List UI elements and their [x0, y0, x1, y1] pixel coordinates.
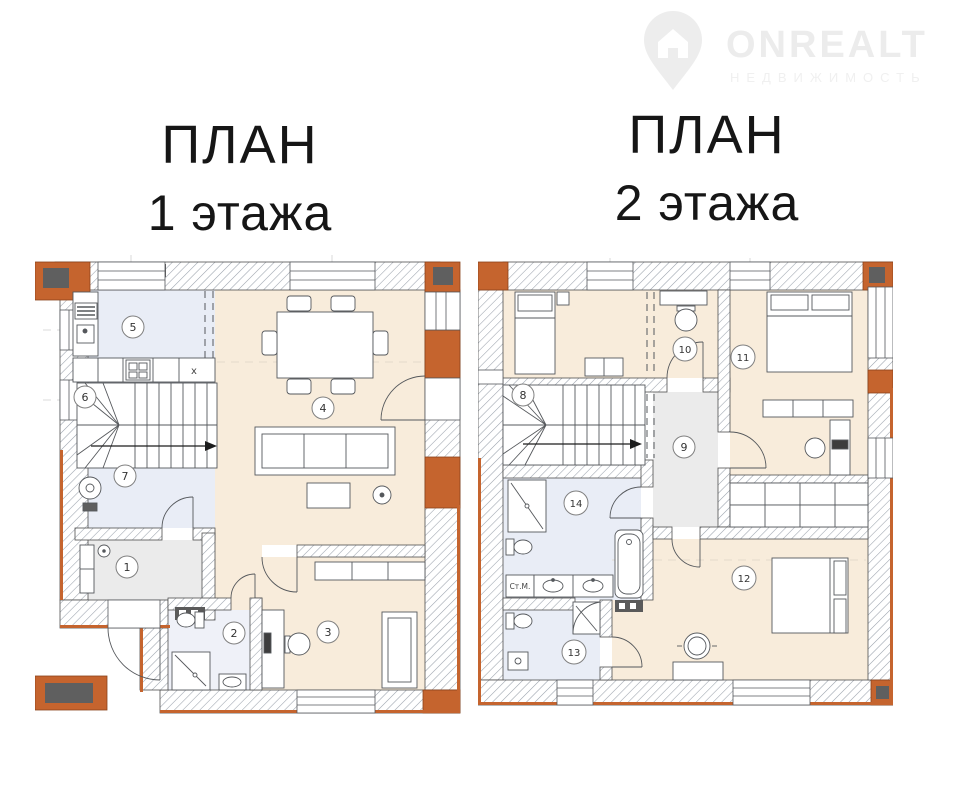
staircase-floor1: [77, 383, 217, 468]
floor1-title-line2: 1 этажа: [125, 188, 355, 238]
kitchen-unit-label: x: [191, 366, 197, 377]
room-number-13: 13: [568, 648, 581, 659]
room-number-3: 3: [325, 626, 332, 639]
floor1-title-line1: ПЛАН: [125, 118, 355, 172]
room-number-1: 1: [124, 561, 131, 574]
room-number-2: 2: [231, 627, 238, 640]
washing-machine-label: Ст.М.: [510, 582, 531, 591]
room-number-9: 9: [681, 441, 688, 454]
room-number-5: 5: [130, 321, 137, 334]
floorplan-image: ONREALT НЕДВИЖИМОСТЬ ПЛАН 1 этажа ПЛАН 2…: [0, 0, 955, 800]
watermark-brand: ONREALT: [726, 24, 928, 67]
room-number-4: 4: [320, 402, 327, 415]
room-number-7: 7: [122, 470, 129, 483]
floor1-title: ПЛАН 1 этажа: [125, 118, 355, 238]
room-number-10: 10: [679, 345, 692, 356]
room-number-6: 6: [82, 391, 89, 404]
location-pin-house-icon: [638, 10, 708, 96]
watermark-subtitle: НЕДВИЖИМОСТЬ: [730, 70, 927, 85]
room-number-14: 14: [570, 499, 583, 510]
floor2-plan: Ст.М. 8 9 10 11 12 13: [478, 258, 893, 708]
room-number-11: 11: [737, 353, 750, 364]
room-number-8: 8: [520, 389, 527, 402]
floor2-title-line2: 2 этажа: [592, 178, 822, 228]
floor1-plan: x: [35, 255, 465, 720]
floor2-title: ПЛАН 2 этажа: [592, 108, 822, 228]
floor2-title-line1: ПЛАН: [592, 108, 822, 162]
watermark-logo: ONREALT НЕДВИЖИМОСТЬ: [638, 10, 948, 102]
room-number-12: 12: [738, 574, 751, 585]
closet-row: [730, 483, 868, 527]
